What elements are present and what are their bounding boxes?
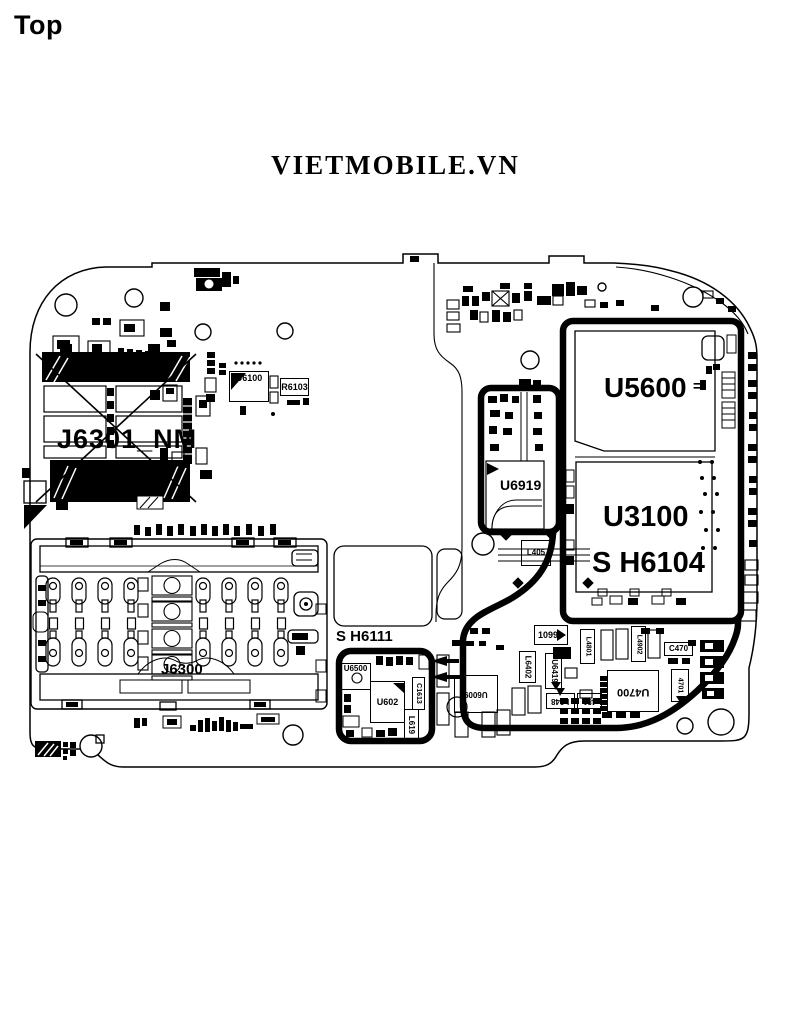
chip-u6100-label: U6100 xyxy=(236,374,263,383)
resistor-r6103-label: R6103 xyxy=(281,383,308,392)
chip-u6419-label: U6419 xyxy=(550,659,558,683)
top-edge-connector xyxy=(194,256,587,296)
shield-u5600-equals-mark: = xyxy=(693,379,702,394)
chip-u6602: U602 xyxy=(370,681,405,723)
shield-u3100-label: U3100 xyxy=(603,503,688,532)
inductor-l405-label: L405 xyxy=(527,549,545,557)
chip-u6919-label: U6919 xyxy=(500,478,541,492)
part-l648-label: L648 xyxy=(551,697,569,705)
chip-u6602-label: U602 xyxy=(377,698,399,707)
resistor-r6103: R6103 xyxy=(280,378,309,396)
chip-u4700-label: U4700 xyxy=(617,686,649,697)
top-side-label: Top xyxy=(14,12,63,39)
pcb-layout-page: Top VIETMOBILE.VN J6301_NM U5600 = U6919… xyxy=(0,0,791,1024)
card-connector-j6300-label: J6300 xyxy=(161,662,203,677)
part-l648: L648 xyxy=(546,693,575,709)
chip-u6009-label: U6009 xyxy=(464,690,488,698)
chip-u6500: U6500 xyxy=(340,663,371,690)
j6300-nearby-parts xyxy=(134,524,279,732)
part-1099-label: 1099 xyxy=(538,631,558,640)
cap-c470-label: C470 xyxy=(669,645,688,653)
inductor-l619-label: L619 xyxy=(408,715,416,733)
watermark-title: VIETMOBILE.VN xyxy=(0,152,791,179)
part-4701-label: 4701 xyxy=(676,678,683,694)
inductor-l4902: L4902 xyxy=(631,626,646,662)
chip-u6009: U6009 xyxy=(454,675,498,713)
chip-u4700: U4700 xyxy=(607,670,659,712)
chip-u6500-label: U6500 xyxy=(344,665,368,673)
part-481-label: 481 xyxy=(583,697,596,705)
part-481: 481 xyxy=(577,693,602,709)
inductor-l6402: L6402 xyxy=(519,651,536,683)
part-4701: 4701 xyxy=(671,669,689,702)
inductor-l619: L619 xyxy=(404,709,419,740)
cap-c470: C470 xyxy=(664,642,693,656)
connector-j6300 xyxy=(31,538,327,710)
inductor-l4801-label: L4801 xyxy=(584,637,591,657)
chip-u6100: U6100 xyxy=(229,371,269,402)
inductor-l4801: L4801 xyxy=(580,629,595,664)
shield-sh6111-label: S H6111 xyxy=(336,629,393,644)
inductor-l405: L405 xyxy=(521,540,551,566)
cap-c1613-label: C1613 xyxy=(415,683,422,704)
shield-sh6104-label: S H6104 xyxy=(592,549,705,578)
part-1099: 1099 xyxy=(534,625,568,645)
shield-u5600-label: U5600 xyxy=(604,374,687,402)
sim-connector-j6301-label: J6301_NM xyxy=(57,426,197,453)
cap-c1613: C1613 xyxy=(412,677,425,710)
u6919-interior xyxy=(486,392,544,535)
inductor-l6402-label: L6402 xyxy=(524,656,532,679)
chip-u6419: U6419 xyxy=(545,653,562,689)
inductor-l4902-label: L4902 xyxy=(635,634,642,654)
